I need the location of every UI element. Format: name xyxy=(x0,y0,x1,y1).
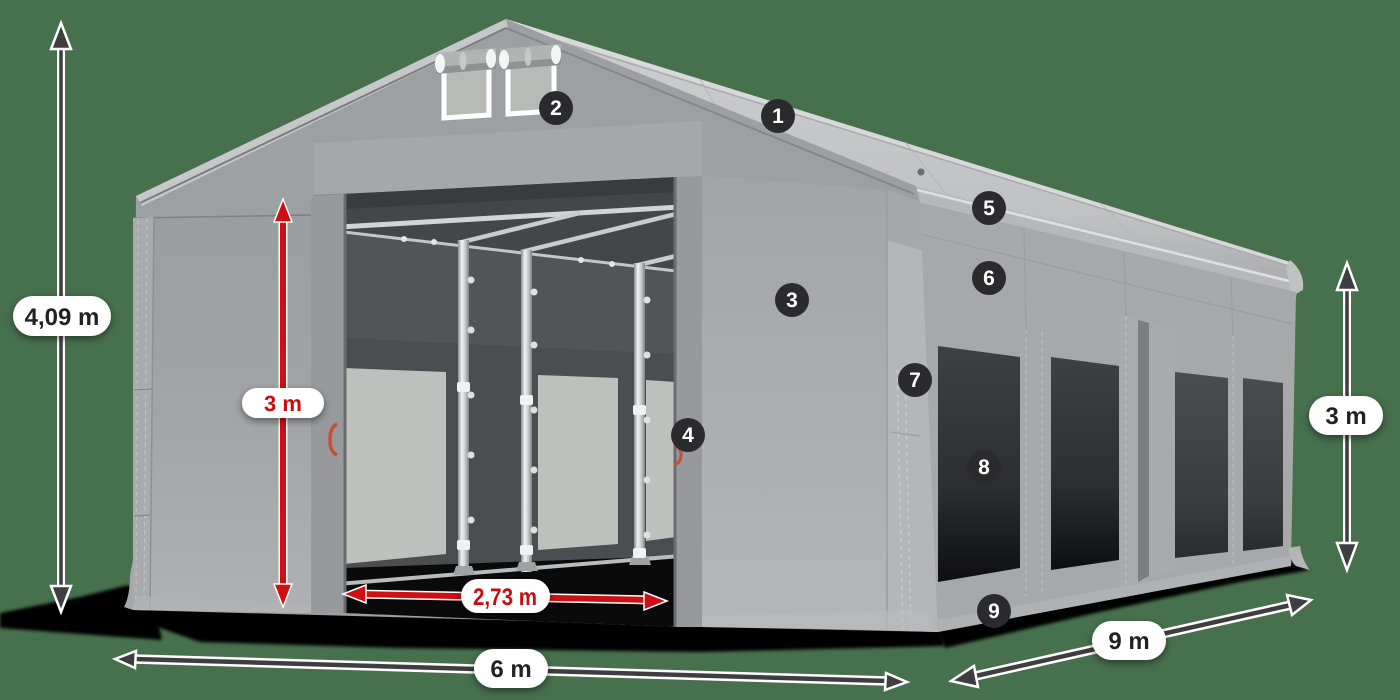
svg-text:4: 4 xyxy=(682,424,694,447)
svg-text:7: 7 xyxy=(909,369,921,392)
svg-text:1: 1 xyxy=(772,105,784,128)
svg-text:4,09 m: 4,09 m xyxy=(25,304,100,331)
svg-text:6 m: 6 m xyxy=(490,656,531,683)
svg-text:8: 8 xyxy=(978,456,990,479)
svg-text:2,73 m: 2,73 m xyxy=(473,584,537,611)
svg-text:2: 2 xyxy=(550,97,562,120)
svg-text:3 m: 3 m xyxy=(264,391,302,416)
svg-text:3: 3 xyxy=(786,289,798,312)
svg-text:9: 9 xyxy=(988,600,1000,623)
svg-text:3 m: 3 m xyxy=(1325,403,1366,430)
svg-text:5: 5 xyxy=(983,197,995,220)
svg-text:9 m: 9 m xyxy=(1108,628,1149,655)
svg-text:6: 6 xyxy=(983,267,995,290)
